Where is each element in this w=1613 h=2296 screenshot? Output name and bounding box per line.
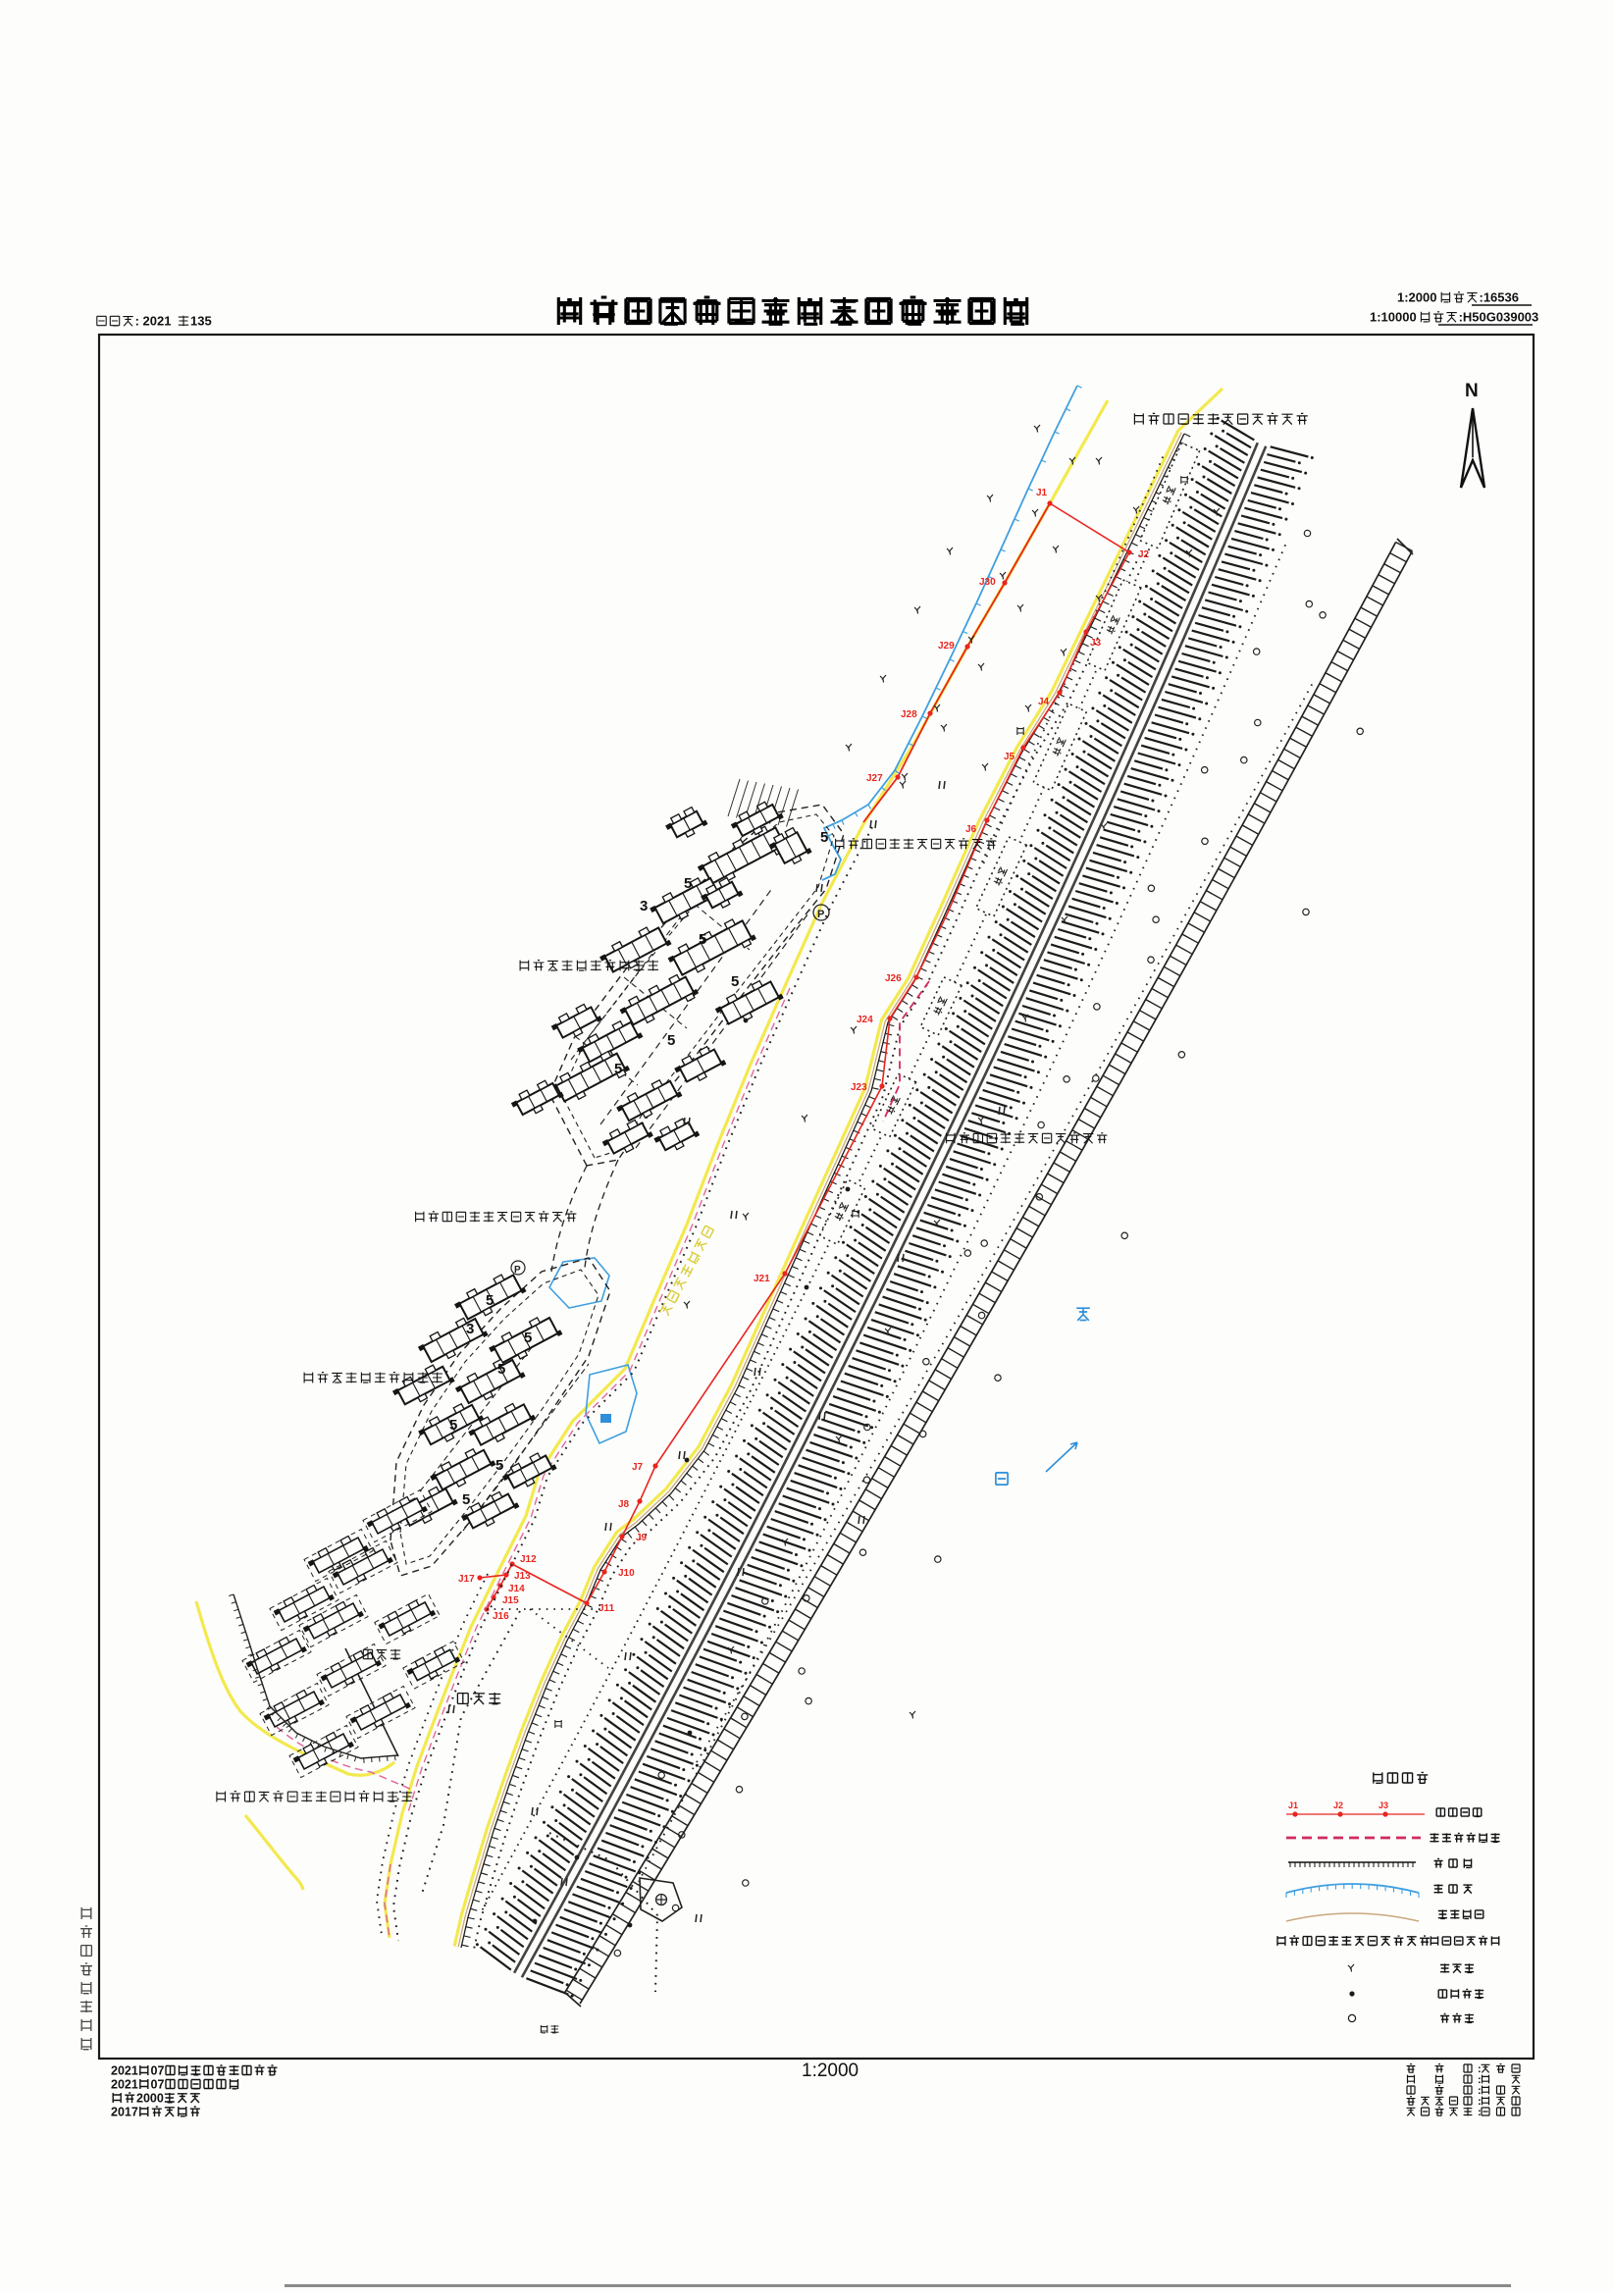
svg-text:J3: J3 bbox=[1090, 638, 1102, 649]
svg-text:J1: J1 bbox=[1036, 488, 1048, 498]
svg-text:J1: J1 bbox=[1288, 1800, 1298, 1810]
svg-text:3: 3 bbox=[466, 1321, 474, 1337]
svg-text:J23: J23 bbox=[851, 1082, 867, 1093]
svg-text:5: 5 bbox=[667, 1032, 675, 1049]
svg-text:P: P bbox=[817, 909, 824, 920]
svg-text:1:10000: 1:10000 bbox=[1370, 310, 1417, 325]
svg-text:5: 5 bbox=[699, 931, 706, 948]
svg-text:J2: J2 bbox=[1138, 549, 1150, 560]
svg-text:J28: J28 bbox=[901, 709, 917, 720]
svg-text:5: 5 bbox=[486, 1292, 494, 1309]
svg-text:J6: J6 bbox=[965, 824, 977, 835]
svg-text:1:2000: 1:2000 bbox=[802, 2061, 859, 2081]
svg-text:J13: J13 bbox=[514, 1571, 531, 1582]
svg-text:J15: J15 bbox=[502, 1595, 519, 1606]
svg-text::16536: :16536 bbox=[1480, 290, 1519, 305]
svg-text:J8: J8 bbox=[618, 1499, 630, 1510]
svg-text:1:2000: 1:2000 bbox=[1397, 290, 1436, 305]
svg-text:: 2021: : 2021 bbox=[135, 314, 172, 329]
svg-text:2017: 2017 bbox=[111, 2106, 138, 2119]
svg-text:J5: J5 bbox=[1004, 752, 1015, 762]
svg-text:5: 5 bbox=[497, 1361, 505, 1378]
svg-text:5: 5 bbox=[614, 1061, 622, 1077]
svg-text:J10: J10 bbox=[618, 1568, 635, 1579]
svg-text:J21: J21 bbox=[754, 1274, 770, 1284]
svg-text:J2: J2 bbox=[1333, 1800, 1343, 1810]
svg-text:J17: J17 bbox=[458, 1574, 475, 1585]
svg-text:5: 5 bbox=[684, 875, 692, 892]
svg-text:5: 5 bbox=[462, 1491, 470, 1508]
svg-text::H50G039003: :H50G039003 bbox=[1459, 310, 1539, 325]
svg-text:5: 5 bbox=[449, 1417, 457, 1434]
svg-text:J11: J11 bbox=[598, 1603, 615, 1614]
svg-text:2021: 2021 bbox=[111, 2064, 138, 2078]
svg-text:J27: J27 bbox=[866, 773, 883, 784]
svg-text:J16: J16 bbox=[493, 1611, 509, 1622]
svg-text:N: N bbox=[1465, 381, 1479, 401]
svg-text:07: 07 bbox=[151, 2078, 165, 2092]
svg-text:07: 07 bbox=[151, 2064, 165, 2078]
svg-text:135: 135 bbox=[190, 314, 212, 329]
svg-text:5: 5 bbox=[495, 1457, 503, 1474]
svg-text::: : bbox=[1478, 2107, 1482, 2118]
svg-text:2000: 2000 bbox=[136, 2092, 164, 2106]
svg-text:J30: J30 bbox=[979, 577, 996, 588]
svg-text:J7: J7 bbox=[632, 1462, 644, 1473]
svg-text:5: 5 bbox=[731, 973, 739, 990]
svg-text:J29: J29 bbox=[938, 641, 955, 652]
svg-text:3: 3 bbox=[640, 898, 648, 914]
svg-text:J12: J12 bbox=[520, 1554, 537, 1565]
svg-text:J24: J24 bbox=[857, 1015, 873, 1025]
svg-text:J14: J14 bbox=[508, 1584, 525, 1594]
svg-text:P: P bbox=[514, 1265, 521, 1276]
svg-text:J9: J9 bbox=[636, 1533, 648, 1543]
svg-text:5: 5 bbox=[820, 829, 828, 846]
svg-text:2021: 2021 bbox=[111, 2078, 138, 2092]
svg-text:J4: J4 bbox=[1038, 697, 1050, 707]
svg-text:J3: J3 bbox=[1379, 1800, 1388, 1810]
svg-text:J26: J26 bbox=[885, 973, 902, 984]
svg-text:5: 5 bbox=[524, 1330, 532, 1346]
